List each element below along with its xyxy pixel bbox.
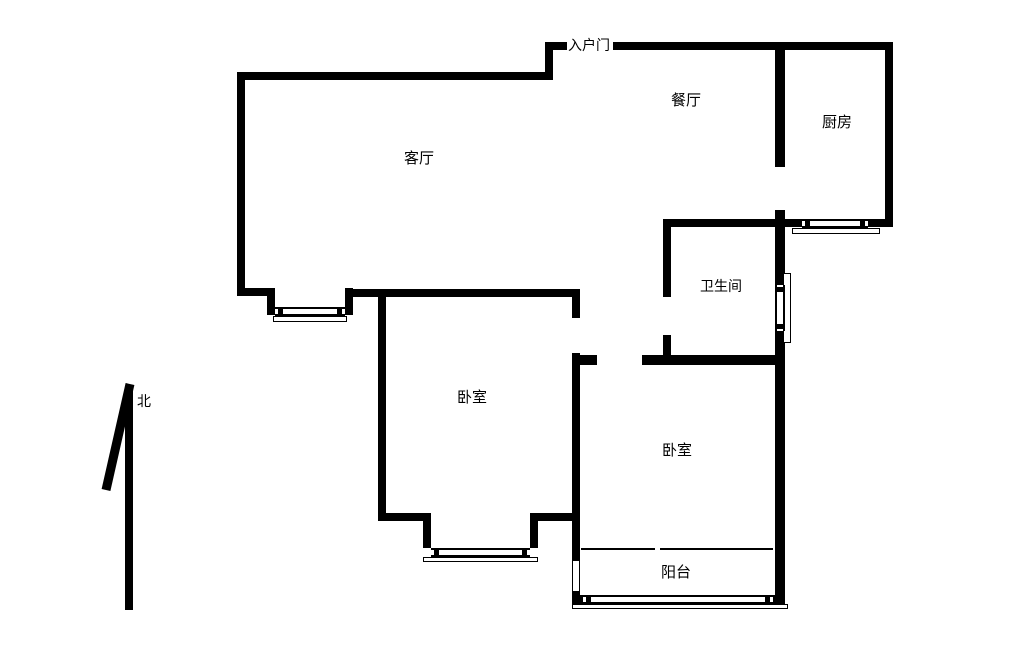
balcony-divider-right-line: [660, 548, 773, 550]
bathroom-window-cap-top: [777, 287, 783, 292]
living-bay-window: [275, 307, 345, 316]
kitchen-divider-wall-wall: [775, 48, 785, 167]
bedroom2-door-stub-wall: [580, 355, 597, 365]
bathroom-label: 卫生间: [700, 280, 742, 294]
balcony-sill: [572, 604, 788, 609]
living-room-label: 客厅: [404, 151, 434, 166]
kitchen-bottom-left-wall: [785, 219, 802, 227]
outer-right-wall-wall: [885, 42, 893, 227]
bathroom-left-lower-wall: [663, 335, 671, 357]
balcony-window-cap-left: [586, 597, 591, 602]
kitchen-label: 厨房: [822, 115, 852, 130]
bedroom1-sill: [423, 557, 538, 562]
balcony-label: 阳台: [661, 565, 691, 580]
north-arrow-icon: [95, 378, 155, 618]
bathroom-window-cap-bottom: [777, 324, 783, 329]
bedroom1-left-wall-wall: [378, 290, 386, 521]
bathroom-left-upper-wall: [663, 219, 671, 297]
balcony-window-cap-right: [765, 597, 770, 602]
bedroom1-window-cap-left: [434, 550, 439, 555]
bathroom-top-wall-wall: [663, 219, 785, 227]
balcony-divider-left-line: [581, 548, 655, 550]
kitchen-sill: [792, 228, 880, 234]
bathroom-window: [775, 285, 785, 331]
bedroom1-right-upper-wall: [572, 290, 580, 318]
right-wall-lower-wall: [775, 331, 785, 605]
living-bay-sill: [273, 316, 347, 322]
bedroom-1-label: 卧室: [457, 390, 487, 405]
living-bay-window-cap-left: [278, 309, 283, 314]
bedroom1-bottom-right-wall: [538, 513, 580, 521]
kitchen-window: [802, 219, 868, 228]
top-wall-right-of-door-wall: [613, 42, 893, 50]
balcony-side-window: [572, 560, 580, 592]
living-top-wall-wall: [237, 72, 553, 80]
dining-room-label: 餐厅: [671, 93, 701, 108]
bay-step-left-wall: [267, 288, 275, 315]
living-left-wall-wall: [237, 72, 245, 296]
balcony-window: [583, 595, 773, 604]
kitchen-window-cap-right: [860, 221, 865, 226]
bedroom-2-label: 卧室: [662, 443, 692, 458]
bedroom1-bay-step-right-wall: [530, 513, 538, 548]
balcony-left-upper-wall: [572, 521, 580, 560]
bedroom1-window-cap-right: [522, 550, 527, 555]
living-bay-window-cap-right: [337, 309, 342, 314]
kitchen-window-cap-left: [805, 221, 810, 226]
bedroom1-window: [431, 548, 530, 557]
bedroom1-right-lower-wall: [572, 353, 580, 521]
floor-plan: 入户门 北 餐厅厨房客厅卫生间卧室卧室阳台: [0, 0, 1027, 648]
entrance-door-label: 入户门: [568, 39, 610, 53]
bedroom1-bay-step-left-wall: [423, 513, 431, 548]
